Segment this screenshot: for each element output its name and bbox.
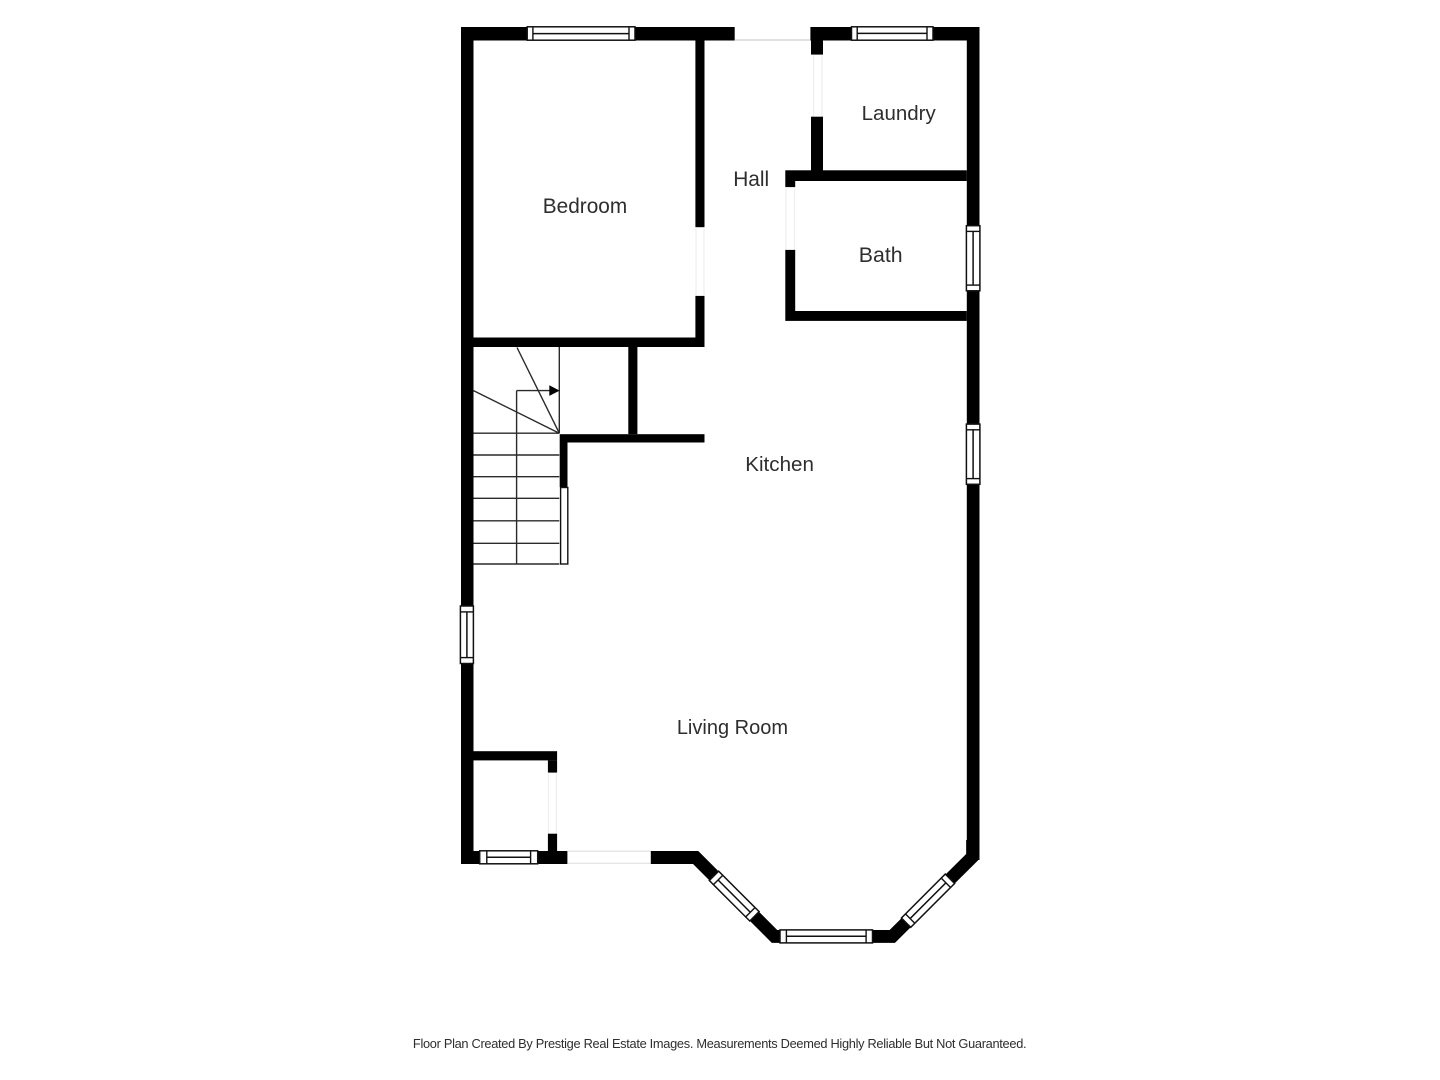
svg-text:Bedroom: Bedroom — [543, 195, 627, 218]
svg-text:Bath: Bath — [859, 243, 903, 267]
svg-text:Laundry: Laundry — [862, 102, 937, 125]
svg-text:Living Room: Living Room — [677, 717, 788, 739]
svg-text:Floor Plan Created By Prestige: Floor Plan Created By Prestige Real Esta… — [413, 1036, 1026, 1051]
svg-text:Kitchen: Kitchen — [745, 453, 814, 476]
svg-text:Hall: Hall — [733, 168, 769, 191]
